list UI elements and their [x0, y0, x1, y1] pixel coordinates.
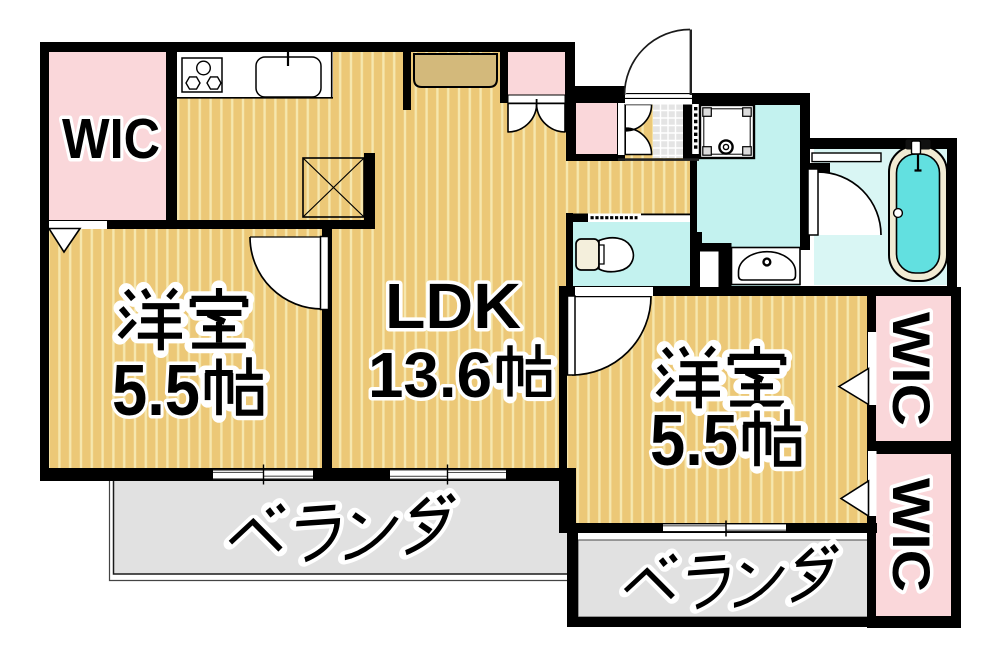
svg-text:5.5: 5.5 [650, 401, 738, 481]
svg-text:5.5: 5.5 [112, 351, 200, 431]
svg-text:WIC: WIC [881, 312, 940, 426]
svg-text:13.6: 13.6 [368, 339, 492, 411]
svg-text:WIC: WIC [62, 107, 160, 171]
svg-text:LDK: LDK [385, 270, 521, 342]
svg-text:WIC: WIC [881, 478, 940, 592]
